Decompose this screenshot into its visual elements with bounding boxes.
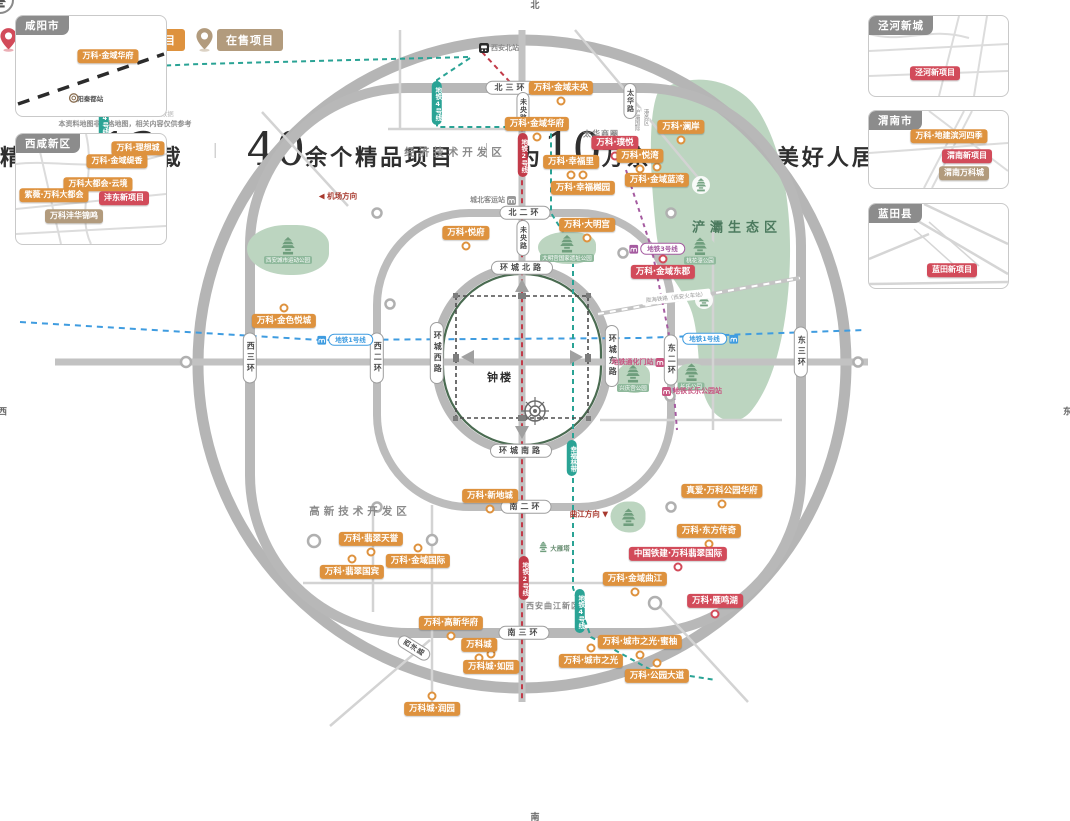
project-pin-icon bbox=[533, 133, 542, 142]
compass-west: 西 bbox=[0, 404, 7, 417]
project-pin-icon bbox=[587, 644, 596, 653]
metro-pill-text: 地铁1号线 bbox=[682, 333, 727, 345]
district-label: 高新技术开发区 bbox=[309, 504, 411, 519]
project-label[interactable]: 万科城·如园 bbox=[463, 660, 519, 674]
inset-project-label[interactable]: 万科·金域华府 bbox=[77, 49, 138, 63]
station-城北客运站: 城北客运站 bbox=[470, 195, 516, 205]
inset-project-label[interactable]: 万科·金域缇香 bbox=[86, 154, 147, 168]
project-label[interactable]: 万科·金域蓝湾 bbox=[625, 173, 689, 187]
inset-project-label[interactable]: 沣东新项目 bbox=[99, 191, 149, 205]
project-label[interactable]: 万科·金域曲江 bbox=[603, 572, 667, 586]
project-label[interactable]: 万科·翡翠天誉 bbox=[339, 532, 403, 546]
project-pin-icon bbox=[636, 651, 645, 660]
district-label: 西安曲江新区 bbox=[526, 601, 580, 612]
road-pill-环城东路: 环城东路 bbox=[605, 325, 619, 387]
project-pin-icon bbox=[280, 304, 289, 313]
district-label: 浐灞生态区 bbox=[692, 217, 782, 236]
project-pin-icon bbox=[447, 632, 456, 641]
project-pin-icon bbox=[579, 171, 588, 180]
inset-project-label[interactable]: 渭南新项目 bbox=[942, 149, 992, 163]
project-pin-icon bbox=[567, 171, 576, 180]
metro-station-icon bbox=[656, 358, 665, 367]
metro-line-pill: 地铁1号线 bbox=[317, 334, 373, 346]
inset-jinghe: 泾河新城 泾河新项目 bbox=[868, 15, 1009, 97]
project-label[interactable]: 万科·悦湾 bbox=[616, 149, 663, 163]
project-label[interactable]: 万科·城市之光·蜜柚 bbox=[598, 635, 682, 649]
metro-icon bbox=[317, 336, 326, 345]
compass-east: 东 bbox=[1063, 404, 1070, 417]
metro-icon bbox=[729, 335, 738, 344]
project-label[interactable]: 万科·高新华府 bbox=[419, 616, 483, 630]
inset-title: 咸阳市 bbox=[16, 16, 69, 35]
project-label[interactable]: 万科城 bbox=[461, 638, 497, 652]
project-label[interactable]: 万科城·润园 bbox=[404, 702, 460, 716]
project-label[interactable]: 万科·澜岸 bbox=[657, 120, 704, 134]
inset-project-label[interactable]: 万科沣华锦鸣 bbox=[45, 209, 103, 223]
bell-tower-label: 钟楼 bbox=[487, 369, 513, 385]
project-pin-icon bbox=[486, 505, 495, 514]
inset-lantian: 蓝田县 蓝田新项目 bbox=[868, 203, 1009, 289]
project-label[interactable]: 万科·大明宫 bbox=[559, 218, 615, 232]
project-pin-icon bbox=[653, 163, 662, 172]
park-label: 西安城市运动公园 bbox=[264, 256, 312, 264]
project-pin-icon bbox=[462, 242, 471, 251]
train-station-icon bbox=[479, 43, 489, 53]
station-label: 西安北站 bbox=[491, 43, 519, 53]
project-label[interactable]: 万科·幸福里 bbox=[543, 155, 599, 169]
metro-pill-text: 地铁3号线 bbox=[640, 243, 685, 255]
project-label[interactable]: 万科·金色悦城 bbox=[252, 314, 316, 328]
project-label[interactable]: 万科·公园大道 bbox=[625, 669, 689, 683]
road-pill-西沣路: 西沣路 bbox=[395, 633, 432, 663]
station-地铁通化门站: 地铁通化门站 bbox=[612, 357, 665, 367]
compass-south: 南 bbox=[530, 810, 539, 821]
metro-capsule-text: 地铁2号线 bbox=[520, 562, 527, 596]
station-label: 地铁长乐公园站 bbox=[673, 386, 722, 396]
xian-project-map-poster: 西安城市运动公园大明宫国家遗址公园桃花潭公园兴庆宫公园长乐公园大雁塔经济技术开发… bbox=[0, 0, 1070, 821]
inset-project-label[interactable]: 蓝田新项目 bbox=[927, 263, 977, 277]
metro-station-icon bbox=[662, 387, 671, 396]
park-label: 兴庆宫公园 bbox=[617, 384, 649, 392]
park-area bbox=[611, 502, 646, 533]
direction-sign: 曲江方向 ▼ bbox=[570, 509, 608, 520]
inset-xianyang: 咸阳市 万科·金域华府咸阳秦都站 bbox=[15, 15, 167, 117]
road-pill-环城西路: 环城西路 bbox=[430, 322, 444, 384]
project-pin-icon bbox=[674, 563, 683, 572]
project-label[interactable]: 万科·东方传奇 bbox=[677, 524, 741, 538]
inset-xixian: 西咸新区 万科·理想城万科·金域缇香万科大都会·云境紫薇·万科大都会沣东新项目万… bbox=[15, 133, 167, 245]
inset-project-label[interactable]: 泾河新项目 bbox=[910, 66, 960, 80]
district-label: 经济技术开发区 bbox=[404, 145, 506, 160]
inset-project-label[interactable]: 渭南万科城 bbox=[939, 166, 989, 180]
metro-line-capsule: 地铁2号线 bbox=[519, 556, 529, 600]
inset-title: 渭南市 bbox=[869, 111, 922, 130]
metro-line-pill: 地铁3号线 bbox=[629, 243, 685, 255]
project-pin-icon bbox=[367, 548, 376, 557]
project-pin-icon bbox=[557, 97, 566, 106]
metro-pill-text: 地铁1号线 bbox=[328, 334, 373, 346]
inset-title: 泾河新城 bbox=[869, 16, 933, 35]
metro-capsule-text: 幸福林带 bbox=[568, 446, 575, 472]
project-label[interactable]: 万科·雁鸣湖 bbox=[687, 594, 743, 608]
metro-station-icon bbox=[507, 196, 516, 205]
project-label[interactable]: 万科·翡翠国宾 bbox=[320, 565, 384, 579]
project-label[interactable]: 万科·金域东郡 bbox=[631, 265, 695, 279]
project-pin-icon bbox=[653, 659, 662, 668]
inset-project-label[interactable]: 万科·地建滨河四季 bbox=[910, 129, 987, 143]
inset-station: 咸阳秦都站 bbox=[69, 93, 104, 103]
port-label-right: 港务区 bbox=[642, 108, 650, 132]
road-pill-未央路: 未央路 bbox=[516, 220, 529, 256]
project-label[interactable]: 万科·幸福樾园 bbox=[551, 181, 615, 195]
station-地铁长乐公园站: 地铁长乐公园站 bbox=[662, 386, 722, 396]
eco-park-pagoda-icon bbox=[692, 176, 710, 194]
road-pill-东三环: 东三环 bbox=[794, 327, 808, 378]
road-pill-东二环: 东二环 bbox=[664, 335, 678, 386]
metro-line-capsule: 幸福林带 bbox=[567, 440, 577, 476]
project-label[interactable]: 万科·金域国际 bbox=[386, 554, 450, 568]
project-label[interactable]: 万科·悦府 bbox=[442, 226, 489, 240]
project-pin-icon bbox=[718, 500, 727, 509]
project-pin-icon bbox=[583, 234, 592, 243]
project-pin-icon bbox=[348, 555, 357, 564]
project-label[interactable]: 万科·新地城 bbox=[462, 489, 518, 503]
road-pill-太华路: 太华路 bbox=[623, 83, 636, 119]
metro-line-capsule: 地铁4号线 bbox=[575, 589, 585, 633]
metro-capsule-text: 地铁2号线 bbox=[519, 139, 526, 173]
park-label: 桃花潭公园 bbox=[684, 257, 716, 265]
metro-icon bbox=[629, 245, 638, 254]
metro-capsule-text: 地铁4号线 bbox=[433, 87, 440, 121]
station-label: 城北客运站 bbox=[470, 195, 505, 205]
metro-line-capsule: 地铁2号线 bbox=[518, 133, 528, 177]
station-label: 地铁通化门站 bbox=[612, 357, 654, 367]
inset-weinan: 渭南市 万科·地建滨河四季渭南新项目渭南万科城 bbox=[868, 110, 1009, 189]
project-label[interactable]: 中国铁建·万科翡翠国际 bbox=[629, 547, 727, 561]
project-pin-icon bbox=[677, 136, 686, 145]
poi-label: 大雁塔 bbox=[550, 542, 570, 552]
project-pin-icon bbox=[414, 544, 423, 553]
metro-capsule-text: 地铁4号线 bbox=[576, 595, 583, 629]
project-label[interactable]: 真爱·万科公园华府 bbox=[681, 484, 762, 498]
park-area: 西安城市运动公园 bbox=[247, 225, 329, 275]
inset-project-label[interactable]: 紫薇·万科大都会 bbox=[19, 188, 88, 202]
inset-project-label[interactable]: 万科·理想城 bbox=[111, 141, 164, 155]
road-pill-西三环: 西三环 bbox=[243, 333, 257, 384]
road-pill-南三环: 南三环 bbox=[499, 626, 550, 640]
project-label[interactable]: 万科·金域未央 bbox=[529, 81, 593, 95]
road-pill-环城南路: 环城南路 bbox=[490, 444, 552, 458]
project-label[interactable]: 万科·金域华府 bbox=[505, 117, 569, 131]
road-pill-环城北路: 环城北路 bbox=[491, 261, 553, 275]
inset-title: 蓝田县 bbox=[869, 204, 922, 223]
project-pin-icon bbox=[659, 255, 668, 264]
compass-north: 北 bbox=[530, 0, 539, 11]
compass-rose-icon bbox=[520, 396, 550, 426]
park-area: 兴庆宫公园 bbox=[616, 363, 650, 393]
park-area: 桃花潭公园 bbox=[684, 238, 716, 265]
project-pin-icon bbox=[631, 588, 640, 597]
inset-title: 西咸新区 bbox=[16, 134, 80, 153]
project-label[interactable]: 万科·城市之光 bbox=[559, 654, 623, 668]
metro-line-pill: 地铁1号线 bbox=[682, 333, 738, 345]
poi-dayanta: 大雁塔 bbox=[538, 542, 570, 553]
project-pin-icon bbox=[711, 610, 720, 619]
metro-line-capsule: 地铁4号线 bbox=[432, 81, 442, 125]
station-西安北站: 西安北站 bbox=[479, 43, 519, 53]
road-pill-北二环: 北二环 bbox=[500, 206, 551, 220]
direction-sign: ◀ 机场方向 bbox=[319, 191, 357, 202]
project-pin-icon bbox=[428, 692, 437, 701]
